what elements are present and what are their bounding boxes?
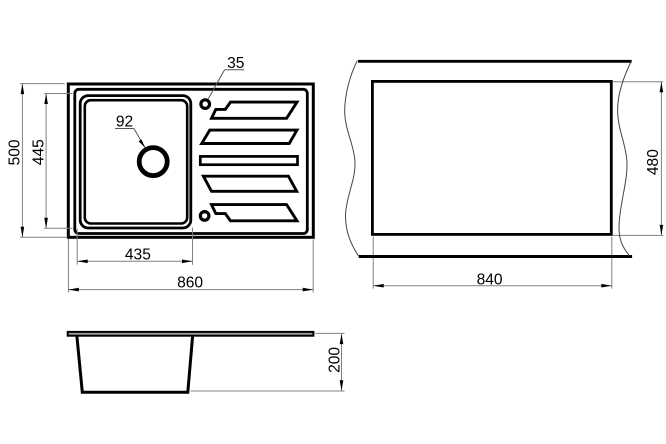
svg-text:480: 480 [645, 149, 662, 175]
svg-text:840: 840 [477, 271, 503, 288]
svg-text:92: 92 [116, 113, 133, 130]
svg-text:35: 35 [227, 55, 245, 72]
svg-text:435: 435 [125, 246, 151, 263]
svg-text:860: 860 [177, 275, 203, 292]
svg-text:445: 445 [31, 139, 48, 165]
svg-text:500: 500 [7, 139, 24, 165]
svg-text:200: 200 [327, 347, 344, 373]
